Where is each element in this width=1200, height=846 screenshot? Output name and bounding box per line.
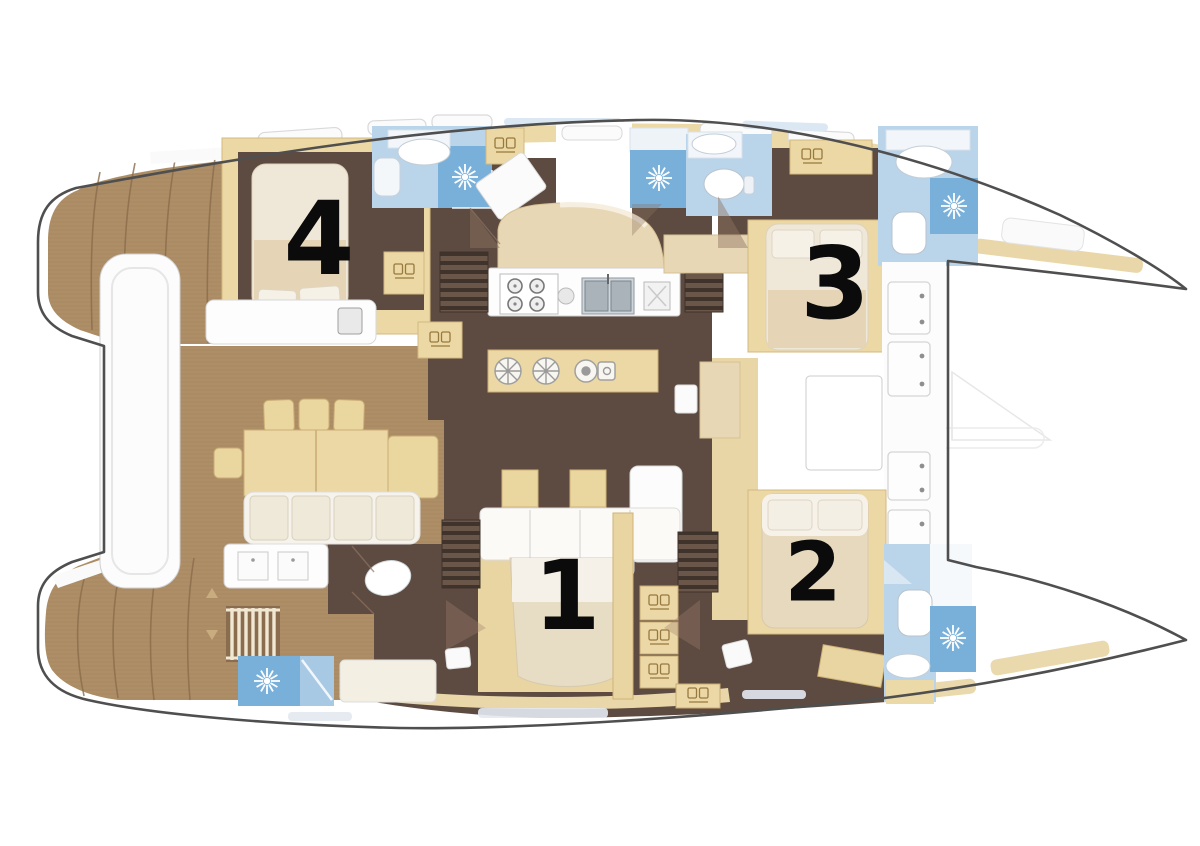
bathroom-port-mid xyxy=(630,128,772,216)
cabin-4-number: 4 xyxy=(284,189,353,291)
sink-icon xyxy=(278,552,308,580)
double-sink-icon xyxy=(582,274,634,314)
sink-icon xyxy=(886,654,930,678)
toilet-icon xyxy=(898,590,932,636)
table-block xyxy=(502,470,538,507)
fwd-storage xyxy=(882,262,946,566)
sink-icon xyxy=(398,139,450,165)
cabin-3-number: 3 xyxy=(800,234,868,334)
cabin-1-number: 1 xyxy=(534,548,599,644)
bench xyxy=(340,660,436,702)
bathroom-port-fwd xyxy=(878,126,978,266)
appliance-icon xyxy=(644,282,670,310)
sink-icon xyxy=(238,552,268,580)
yacht-floor-plan: 1 2 3 4 xyxy=(0,0,1200,846)
stove-burners-icon xyxy=(500,274,558,314)
sink-icon xyxy=(338,308,362,334)
nav-cabinet xyxy=(700,362,740,438)
stairs-icon xyxy=(678,532,718,592)
door-panel xyxy=(806,376,882,470)
toilet-icon xyxy=(892,212,926,254)
buffet xyxy=(664,235,758,273)
cabin-2-number: 2 xyxy=(784,533,839,615)
sink-icon xyxy=(896,146,952,178)
ladder-icon xyxy=(226,606,280,662)
faucet-icon xyxy=(558,288,574,304)
toilet-icon xyxy=(374,158,400,196)
floor-plan-drawing xyxy=(0,0,1200,846)
sink-icon xyxy=(692,134,736,154)
toilet-icon xyxy=(704,169,744,199)
stairs-icon xyxy=(442,520,480,588)
table-block xyxy=(570,470,606,507)
stairs-port xyxy=(440,252,488,312)
aft-shower xyxy=(238,656,334,706)
